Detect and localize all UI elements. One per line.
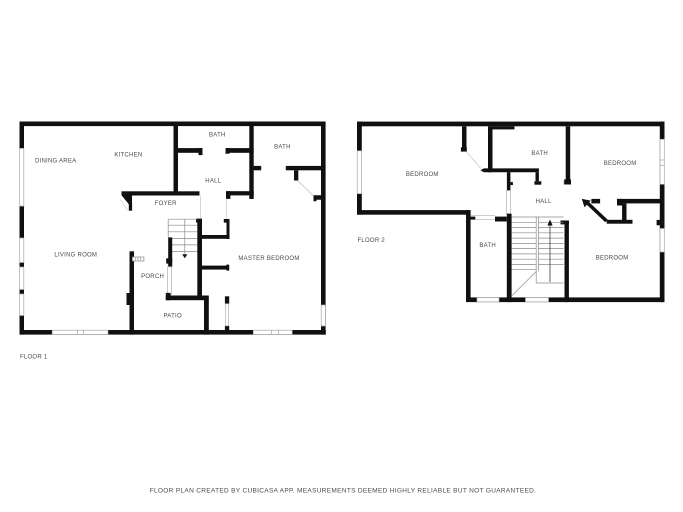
svg-text:PATIO: PATIO — [164, 313, 182, 319]
svg-text:BEDROOM: BEDROOM — [604, 161, 637, 167]
svg-text:BATH: BATH — [209, 133, 226, 139]
svg-text:FLOOR PLAN CREATED BY CUBICASA: FLOOR PLAN CREATED BY CUBICASA APP. MEAS… — [150, 487, 537, 494]
svg-text:BATH: BATH — [479, 243, 496, 249]
svg-text:KITCHEN: KITCHEN — [114, 153, 142, 159]
svg-text:FLOOR 1: FLOOR 1 — [20, 355, 48, 361]
svg-text:BEDROOM: BEDROOM — [596, 255, 629, 261]
svg-text:HALL: HALL — [205, 179, 221, 185]
svg-text:BATH: BATH — [531, 151, 548, 157]
svg-text:DINING AREA: DINING AREA — [35, 158, 76, 164]
svg-text:FLOOR 2: FLOOR 2 — [358, 238, 386, 244]
svg-text:LIVING ROOM: LIVING ROOM — [54, 253, 97, 259]
svg-text:BEDROOM: BEDROOM — [406, 172, 439, 178]
svg-text:PORCH: PORCH — [141, 274, 164, 280]
svg-text:BATH: BATH — [274, 145, 291, 151]
svg-text:MASTER BEDROOM: MASTER BEDROOM — [238, 256, 299, 262]
svg-text:HALL: HALL — [536, 199, 552, 205]
svg-text:FOYER: FOYER — [155, 201, 177, 207]
